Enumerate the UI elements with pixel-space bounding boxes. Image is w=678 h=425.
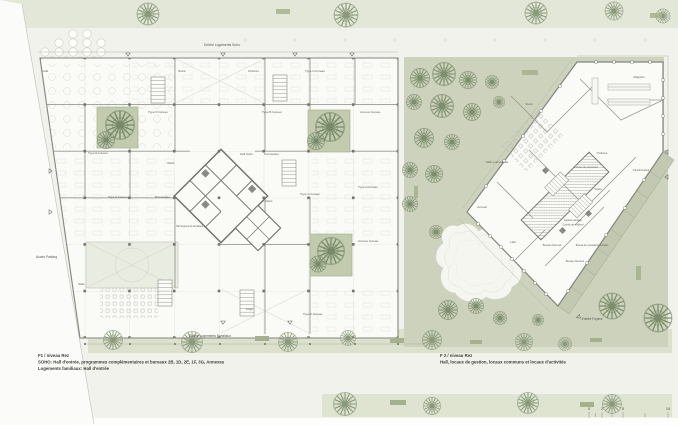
room-label: Accueil <box>477 205 487 209</box>
room-label: Type G bureau <box>300 192 320 196</box>
room-label: Vélos <box>265 199 273 203</box>
room-label: Type F bureau <box>303 312 323 316</box>
caption-f2-line2: Hall, locaux de gestion, locaux communs … <box>440 360 567 365</box>
room-label: Espace partagé <box>564 219 582 222</box>
caption-f1-line2: SOHO: Hall d'entrée, programmes compléme… <box>38 360 225 365</box>
site-plan-canvas: Café Stock Ordures Type G bureau Type D … <box>0 0 678 425</box>
room-label: Transformateur <box>633 169 650 172</box>
room-label: Annexe bureau <box>360 110 381 114</box>
room-label: Comité de résident <box>563 224 584 227</box>
room-label: Hall <box>510 240 516 244</box>
room-label: Bureau directeur <box>566 260 585 263</box>
room-label: Type E bureau <box>88 151 108 155</box>
room-label: Vélos <box>594 187 602 191</box>
room-label: Café <box>42 69 49 73</box>
room-label: Vélos <box>167 161 175 165</box>
parking-access-label: Accès Parking <box>36 255 57 259</box>
room-label: Locaux du personnel <box>574 166 598 169</box>
entrance-label-soho: Entrée Logements Soho <box>204 43 240 47</box>
room-label: Salle polyvalente <box>486 160 509 164</box>
room-label: Bureau d'accueil <box>543 244 562 247</box>
room-label: Salle <box>78 282 85 286</box>
room-label: Poussettes <box>155 195 170 199</box>
room-label: Type G bureau <box>305 69 325 73</box>
room-label: Magasin <box>633 75 645 79</box>
room-label: Hall Soho <box>240 152 253 156</box>
entrance-label-foyers: Entrée Foyers <box>582 317 603 321</box>
scale-tick-10: 10 <box>666 406 671 411</box>
room-label: Stock <box>178 69 186 73</box>
room-label: Ordures <box>248 69 259 73</box>
floor-plan-drawing: Café Stock Ordures Type G bureau Type D … <box>0 0 678 425</box>
entrance-label-familiaux: Entrée Logements Familiaux <box>189 334 231 338</box>
room-label: Stock <box>525 102 533 106</box>
top-green-strip <box>0 0 678 28</box>
caption-f1-line3: Logements familiaux: Hall d'entrée <box>38 366 110 371</box>
room-label: Poussettes <box>264 152 279 156</box>
room-label: Bureau des prestations sociales <box>576 244 609 247</box>
left-building <box>30 50 430 350</box>
room-label: Ordures <box>597 151 608 155</box>
room-label: Type G bureau <box>358 185 378 189</box>
lower-green-band <box>322 394 672 417</box>
room-label: Type D bureau <box>148 110 168 114</box>
caption-f1-line1: F1 / niveau Rez <box>38 353 69 358</box>
room-label: Type B bureau <box>262 110 282 114</box>
room-label: Hall logements familiaux <box>176 225 204 228</box>
caption-f2-line1: F 2 / niveau Rez <box>440 353 472 358</box>
room-label: Type E bureau <box>108 195 128 199</box>
room-label: Annexe bureau <box>358 239 379 243</box>
room-label: Loge <box>246 307 253 311</box>
